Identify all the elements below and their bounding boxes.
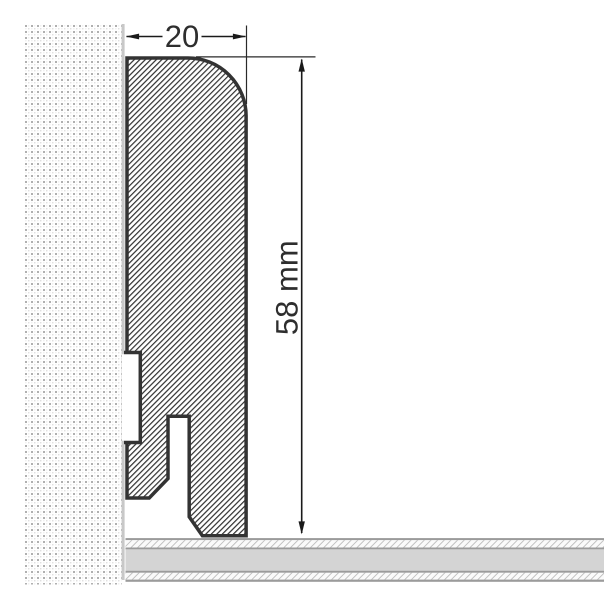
svg-text:20: 20 [165,19,199,54]
svg-text:58 mm: 58 mm [270,240,305,335]
